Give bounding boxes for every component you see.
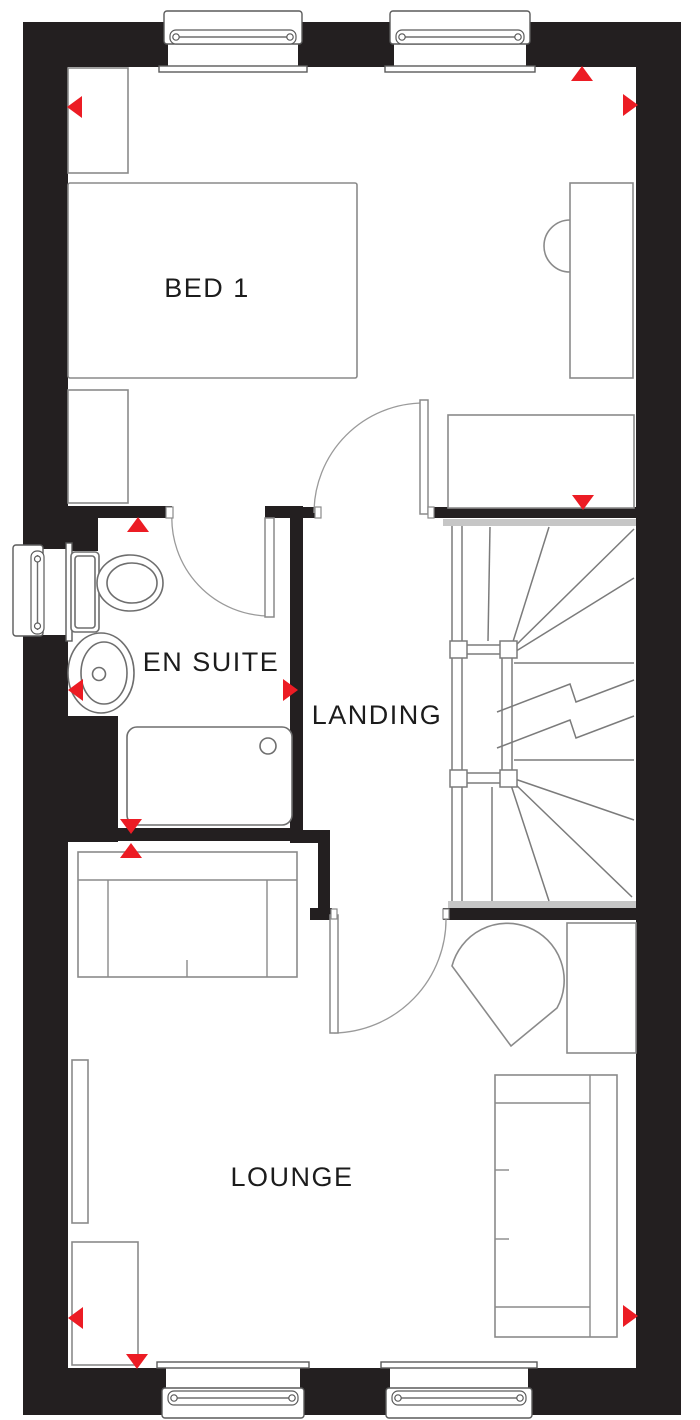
lounge-door-swing (334, 917, 446, 1033)
door-jamb-cap (428, 507, 434, 518)
window-pivot (173, 34, 179, 40)
room-label-lounge: LOUNGE (230, 1162, 353, 1192)
dimension-arrow-right (623, 1305, 638, 1327)
toilet-cistern-inner (75, 556, 95, 628)
window-pivot (399, 34, 405, 40)
stair-newel-post (450, 641, 467, 658)
bedroom-door-swing (314, 403, 424, 513)
stair-nosing-bottom (448, 901, 636, 908)
radiator (72, 1060, 88, 1223)
window-sill (385, 66, 535, 72)
toilet-bowl-inner (107, 563, 157, 603)
bedside-table (68, 68, 128, 173)
dimension-arrow-right (623, 94, 638, 116)
window-sill (159, 66, 307, 72)
corner-chair (452, 923, 564, 1046)
floorplan: BED 1 EN SUITE LANDING LOUNGE (0, 0, 700, 1420)
sofa-right (495, 1075, 617, 1337)
basin-tap (93, 668, 106, 681)
room-label-ensuite: EN SUITE (143, 647, 280, 677)
stair-break-line (497, 716, 634, 748)
window-sill (157, 1362, 309, 1368)
wall-ensuite-north-left (68, 506, 172, 518)
stair-nosing-top (443, 519, 636, 526)
window-pivot (287, 34, 293, 40)
wall-top (23, 22, 681, 67)
dimension-arrow-up (571, 66, 593, 81)
door-jamb-cap (443, 909, 449, 919)
ensuite-door-leaf (265, 518, 274, 617)
door-jamb-cap (315, 507, 321, 518)
cupboard-over-stairs (448, 415, 634, 508)
lounge-door-leaf (330, 915, 338, 1033)
window-pivot (395, 1395, 401, 1401)
ensuite-door-swing (172, 512, 270, 616)
door-jamb-cap (331, 909, 337, 919)
room-label-landing: LANDING (312, 700, 443, 730)
window-pivot (35, 556, 41, 562)
side-table (567, 923, 636, 1053)
wall-ensuite-left-mass (23, 716, 118, 842)
sofa-top (78, 852, 297, 977)
wall-stairs-south (443, 908, 636, 920)
stair-tread (488, 527, 490, 641)
wardrobe (570, 183, 633, 378)
stair-tread (511, 527, 549, 648)
cabinet (72, 1242, 138, 1365)
wall-right (636, 22, 681, 1415)
stair-break-line (497, 680, 634, 712)
wall-lounge-jamb (318, 843, 330, 908)
bedroom-furniture (68, 68, 634, 508)
window-pivot (515, 34, 521, 40)
window-pivot (289, 1395, 295, 1401)
window-pivot (171, 1395, 177, 1401)
staircase (443, 519, 636, 908)
wall-bedroom-south-left-jamb (290, 507, 316, 518)
stair-tread (511, 785, 549, 901)
dimension-arrow-up (127, 517, 149, 532)
wall-ensuite-south (98, 828, 297, 841)
wardrobe-handle (544, 220, 570, 272)
door-jamb-cap (166, 507, 173, 518)
stair-newel-post (500, 641, 517, 658)
stair-newel-post (500, 770, 517, 787)
window-sill (381, 1362, 537, 1368)
room-label-bed1: BED 1 (164, 273, 250, 303)
lounge-furniture (72, 852, 636, 1365)
window-pivot (35, 623, 41, 629)
shower-drain (260, 738, 276, 754)
wall-bottom (23, 1368, 681, 1415)
bedroom-door-leaf (420, 400, 428, 514)
stair-newel-post (450, 770, 467, 787)
window-pivot (517, 1395, 523, 1401)
dimension-arrow-up (120, 843, 142, 858)
chest-of-drawers (68, 390, 128, 503)
wall-lounge-jamb-end (310, 908, 332, 920)
